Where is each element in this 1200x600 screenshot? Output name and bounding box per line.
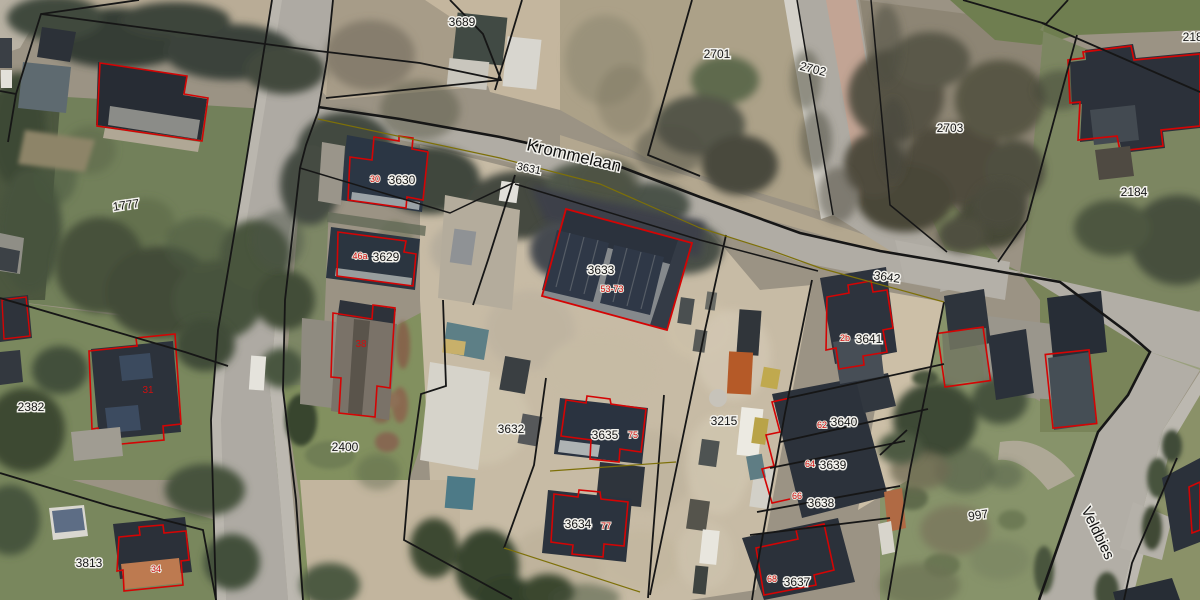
svg-text:53-73: 53-73 [600,284,623,294]
svg-text:3629: 3629 [373,250,400,264]
svg-text:3635: 3635 [592,428,619,442]
svg-text:3813: 3813 [76,556,103,570]
svg-text:31: 31 [142,385,154,396]
svg-text:2703: 2703 [937,121,964,135]
svg-text:3641: 3641 [856,332,883,346]
svg-text:3637: 3637 [784,575,811,589]
svg-text:77: 77 [601,521,611,531]
svg-text:2400: 2400 [332,440,359,454]
svg-text:2b: 2b [840,333,850,343]
svg-text:2184: 2184 [1121,185,1148,199]
svg-text:46a: 46a [352,251,367,261]
svg-text:3639: 3639 [820,458,847,472]
svg-text:3633: 3633 [588,263,615,277]
svg-text:997: 997 [967,507,989,524]
svg-text:2382: 2382 [18,400,45,414]
svg-text:3689: 3689 [449,15,476,29]
svg-text:34: 34 [151,564,161,574]
svg-text:38: 38 [355,339,367,350]
svg-text:3632: 3632 [498,422,525,436]
svg-text:3215: 3215 [711,414,738,428]
svg-text:2701: 2701 [704,47,731,61]
svg-text:75: 75 [628,430,638,440]
svg-text:3630: 3630 [389,173,416,187]
svg-text:3638: 3638 [808,496,835,510]
svg-text:62: 62 [817,420,827,430]
svg-text:68: 68 [767,574,777,584]
svg-text:64: 64 [805,459,815,469]
svg-text:3634: 3634 [565,517,592,531]
svg-text:3640: 3640 [831,415,858,429]
svg-text:2184: 2184 [1183,30,1200,44]
svg-text:66: 66 [792,491,802,501]
svg-text:30: 30 [370,174,380,184]
